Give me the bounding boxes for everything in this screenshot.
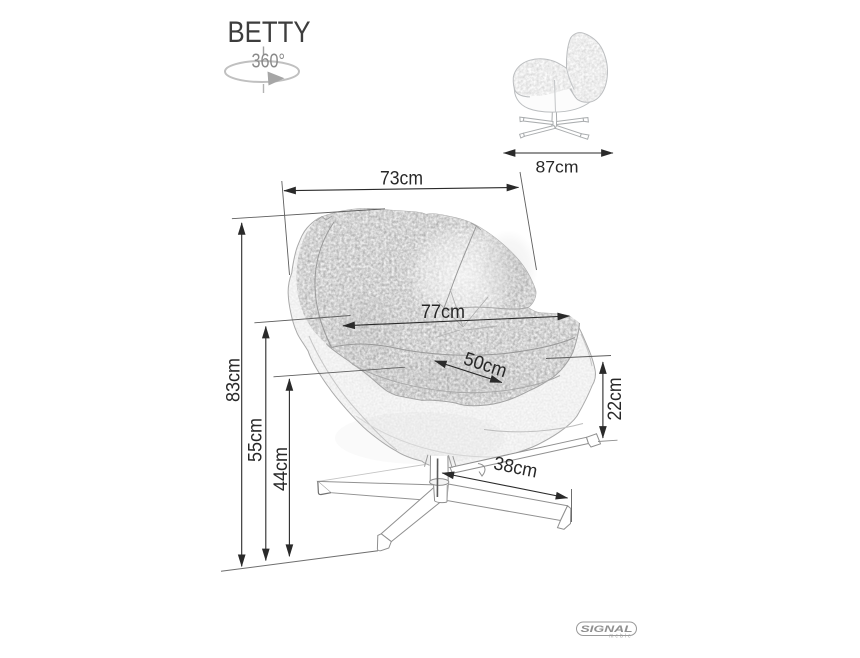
- svg-text:73cm: 73cm: [380, 169, 423, 190]
- svg-text:meble: meble: [609, 634, 633, 640]
- svg-text:55cm: 55cm: [246, 418, 267, 462]
- svg-text:44cm: 44cm: [271, 447, 292, 491]
- svg-text:360°: 360°: [252, 50, 286, 73]
- svg-text:83cm: 83cm: [224, 358, 245, 402]
- svg-text:87cm: 87cm: [536, 158, 579, 177]
- svg-text:77cm: 77cm: [421, 302, 465, 323]
- svg-text:22cm: 22cm: [605, 378, 626, 421]
- svg-text:BETTY: BETTY: [228, 16, 311, 49]
